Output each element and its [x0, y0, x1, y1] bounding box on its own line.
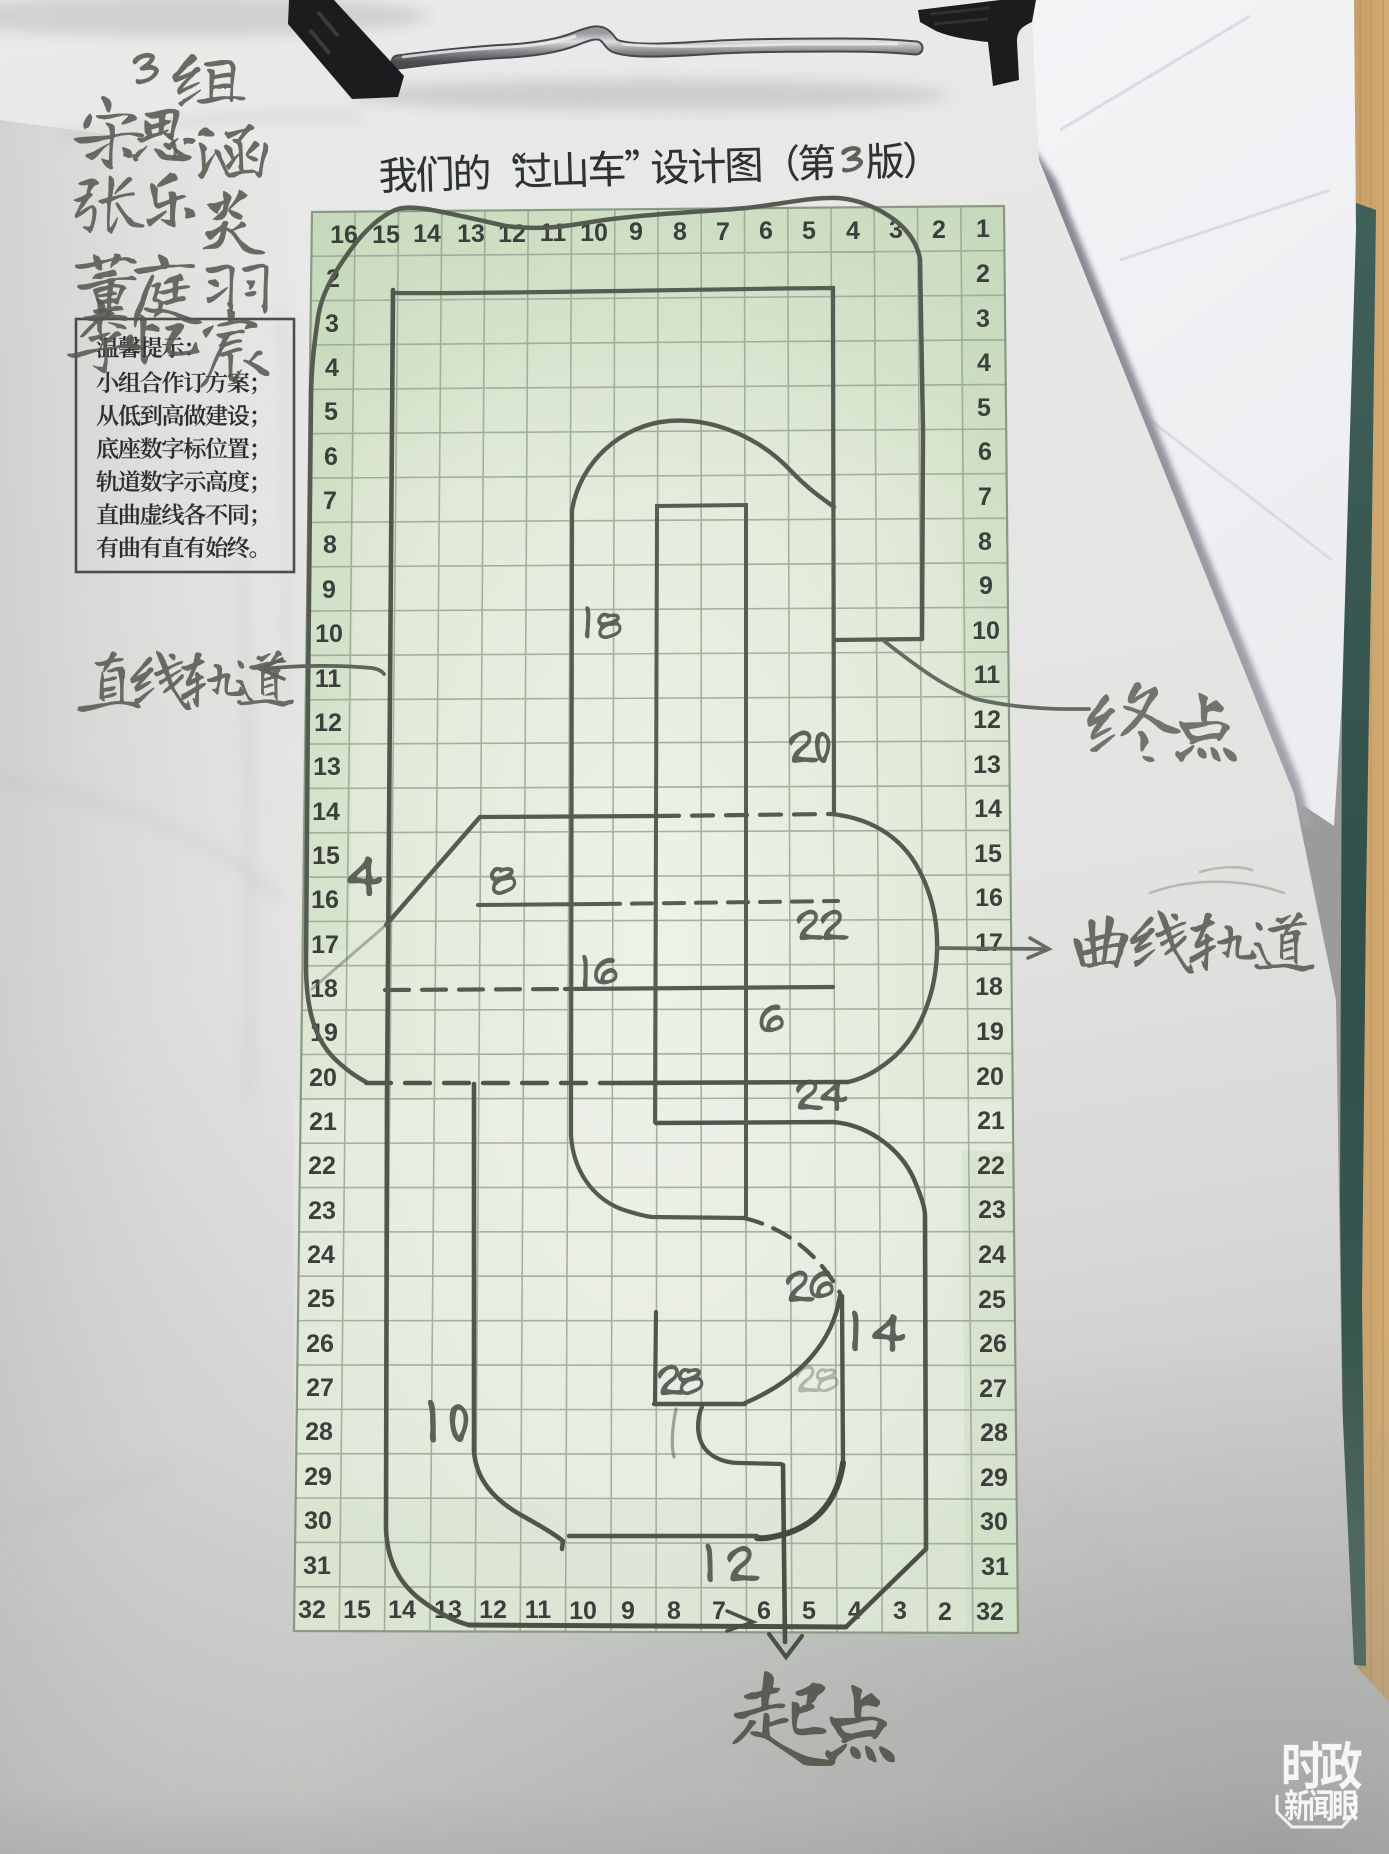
svg-text:5: 5	[802, 217, 816, 245]
svg-text:26: 26	[979, 1330, 1007, 1358]
svg-text:6: 6	[978, 438, 992, 466]
svg-text:20: 20	[309, 1064, 337, 1092]
svg-text:29: 29	[980, 1464, 1008, 1492]
svg-text:12: 12	[314, 709, 342, 737]
svg-text:4: 4	[325, 354, 339, 382]
svg-text:16: 16	[311, 886, 339, 914]
svg-text:2: 2	[976, 260, 990, 288]
svg-text:30: 30	[304, 1507, 332, 1535]
svg-text:28: 28	[305, 1418, 333, 1446]
svg-text:12: 12	[973, 706, 1001, 734]
svg-text:6: 6	[324, 443, 338, 471]
svg-text:11: 11	[974, 661, 1001, 689]
svg-text:17: 17	[311, 931, 339, 959]
svg-text:4: 4	[846, 217, 860, 245]
svg-text:8: 8	[673, 218, 687, 246]
svg-text:14: 14	[413, 220, 441, 248]
svg-text:21: 21	[309, 1108, 337, 1136]
svg-text:23: 23	[308, 1197, 336, 1225]
svg-text:10: 10	[569, 1597, 597, 1625]
svg-text:9: 9	[979, 572, 993, 600]
svg-text:31: 31	[981, 1553, 1009, 1581]
svg-text:9: 9	[322, 576, 336, 604]
svg-text:24: 24	[307, 1241, 335, 1269]
svg-text:7: 7	[716, 218, 730, 246]
svg-text:32: 32	[298, 1596, 326, 1624]
svg-text:3: 3	[976, 305, 990, 333]
svg-text:29: 29	[304, 1463, 332, 1491]
svg-text:5: 5	[324, 398, 338, 426]
svg-text:5: 5	[802, 1597, 816, 1625]
svg-text:6: 6	[759, 217, 773, 245]
svg-text:11: 11	[540, 219, 567, 247]
svg-text:2: 2	[932, 216, 946, 244]
svg-text:14: 14	[312, 798, 340, 826]
svg-text:25: 25	[978, 1286, 1006, 1314]
svg-text:13: 13	[973, 751, 1001, 779]
svg-text:11: 11	[525, 1596, 552, 1624]
svg-text:1: 1	[976, 215, 990, 243]
svg-text:9: 9	[629, 218, 643, 246]
svg-text:9: 9	[621, 1597, 635, 1625]
svg-text:21: 21	[977, 1107, 1005, 1135]
svg-text:24: 24	[978, 1241, 1006, 1269]
svg-text:30: 30	[980, 1508, 1008, 1536]
svg-text:7: 7	[712, 1597, 726, 1625]
svg-text:17: 17	[975, 929, 1003, 957]
svg-text:31: 31	[303, 1552, 331, 1580]
svg-text:28: 28	[980, 1419, 1008, 1447]
svg-text:3: 3	[325, 310, 339, 338]
svg-text:10: 10	[315, 620, 343, 648]
svg-text:10: 10	[972, 617, 1000, 645]
svg-text:7: 7	[978, 483, 992, 511]
svg-text:4: 4	[977, 349, 991, 377]
svg-text:13: 13	[313, 753, 341, 781]
svg-text:8: 8	[978, 528, 992, 556]
svg-text:27: 27	[306, 1374, 334, 1402]
svg-text:15: 15	[974, 840, 1002, 868]
svg-text:15: 15	[372, 221, 400, 249]
svg-text:6: 6	[757, 1597, 771, 1625]
svg-text:20: 20	[976, 1063, 1004, 1091]
svg-text:15: 15	[343, 1596, 371, 1624]
svg-text:11: 11	[315, 665, 342, 693]
svg-text:23: 23	[978, 1196, 1006, 1224]
svg-text:26: 26	[306, 1330, 334, 1358]
svg-text:13: 13	[457, 220, 485, 248]
svg-text:14: 14	[388, 1596, 416, 1624]
svg-text:15: 15	[312, 842, 340, 870]
svg-text:3: 3	[893, 1597, 907, 1625]
svg-text:19: 19	[976, 1018, 1004, 1046]
svg-text:8: 8	[667, 1597, 681, 1625]
svg-text:22: 22	[308, 1152, 336, 1180]
svg-text:5: 5	[977, 394, 991, 422]
svg-text:2: 2	[938, 1598, 952, 1626]
svg-text:18: 18	[975, 973, 1003, 1001]
svg-text:32: 32	[976, 1598, 1004, 1626]
svg-text:14: 14	[974, 795, 1002, 823]
svg-text:25: 25	[307, 1285, 335, 1313]
svg-text:16: 16	[975, 884, 1003, 912]
svg-text:7: 7	[323, 487, 337, 515]
svg-text:22: 22	[977, 1152, 1005, 1180]
svg-text:12: 12	[479, 1596, 507, 1624]
svg-text:8: 8	[323, 531, 337, 559]
svg-text:27: 27	[979, 1375, 1007, 1403]
